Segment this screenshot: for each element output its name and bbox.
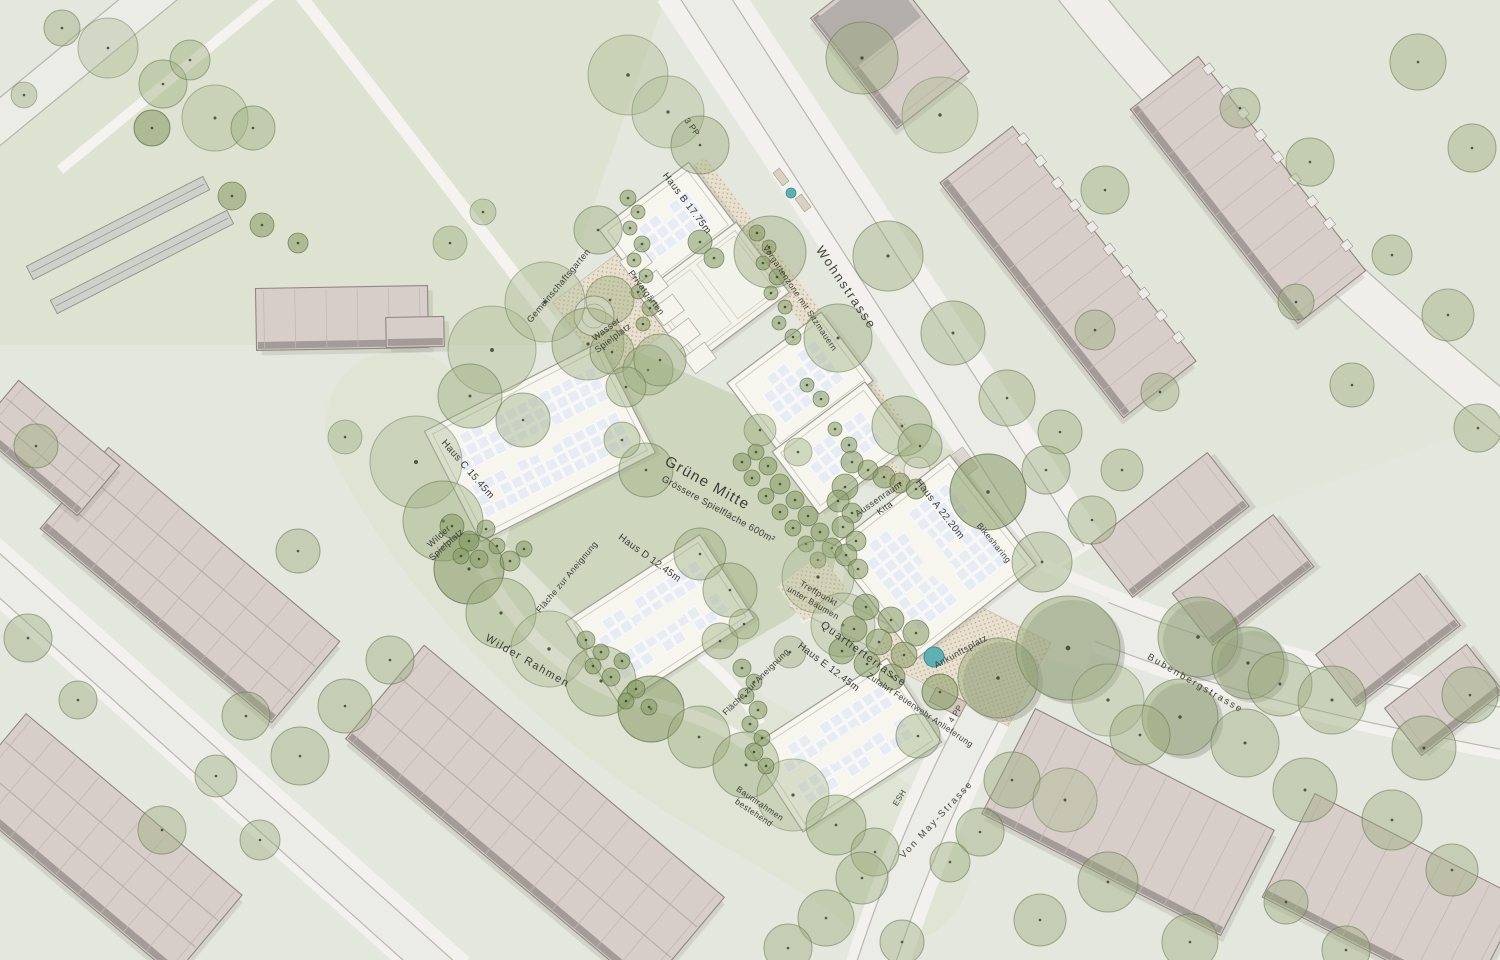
site-plan-map <box>0 0 1500 960</box>
site-plan: Wohnstrasse Vorgartenzone mit Sitzmauern… <box>0 0 1500 960</box>
